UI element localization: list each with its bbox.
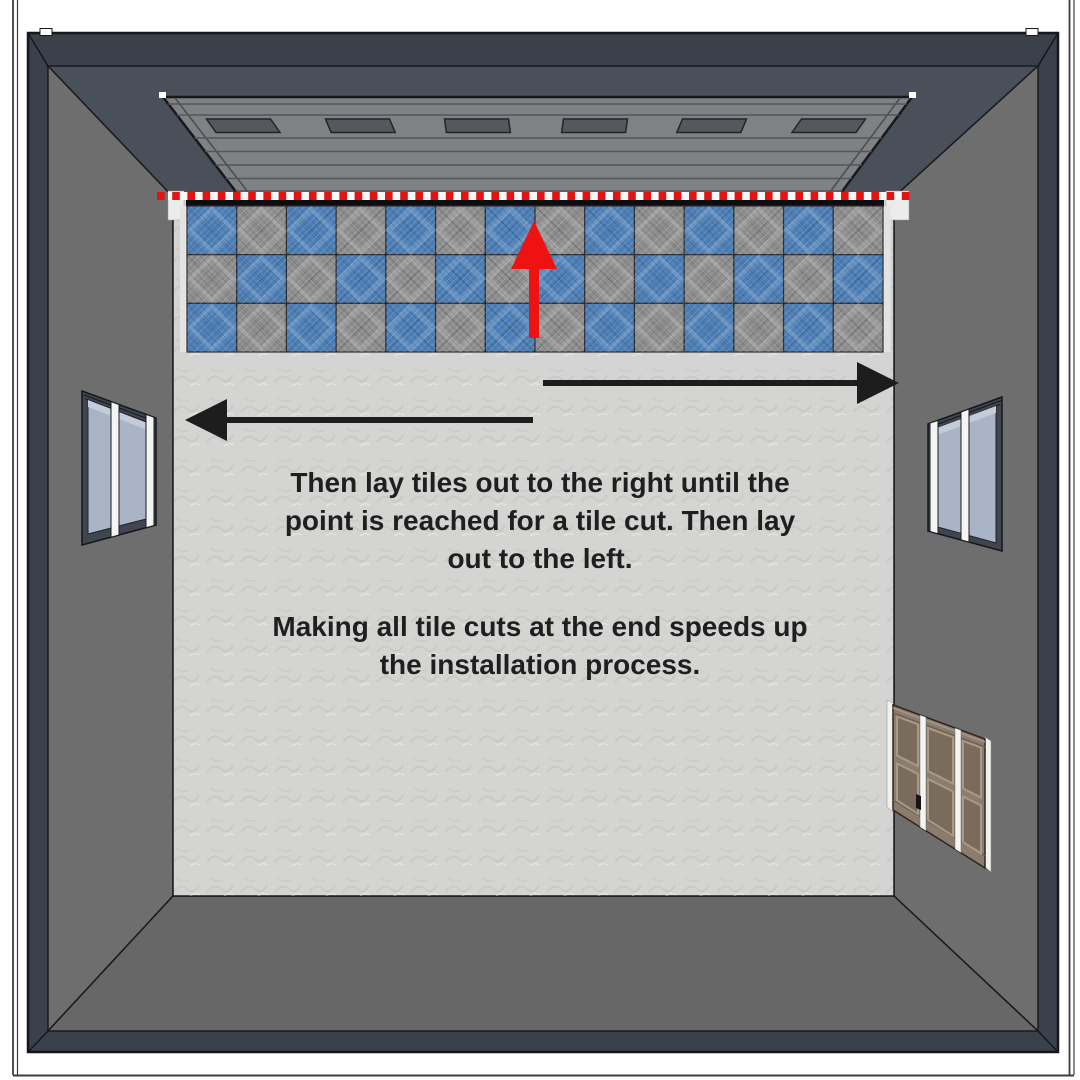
bottom-wall [48, 896, 1038, 1031]
side-door-trim [985, 737, 991, 872]
instruction-paragraph-2: Making all tile cuts at the end speeds u… [190, 608, 890, 684]
instruction-line: Making all tile cuts at the end speeds u… [190, 608, 890, 646]
side-door-handle [916, 794, 921, 810]
instruction-line: out to the left. [190, 540, 890, 578]
door-jamb-strip [884, 206, 891, 352]
corner-notch [1026, 29, 1038, 36]
instruction-text: Then lay tiles out to the right until th… [190, 464, 890, 684]
right-wall [894, 66, 1038, 1031]
instruction-line: the installation process. [190, 646, 890, 684]
corner-notch [40, 29, 52, 36]
side-door-panel [963, 741, 981, 798]
garage-door-window [792, 119, 866, 133]
left-wall-window [82, 391, 156, 545]
side-door-panel [963, 797, 981, 854]
side-door-stile [955, 728, 961, 853]
instruction-paragraph-1: Then lay tiles out to the right until th… [190, 464, 890, 578]
garage-door-window [445, 119, 511, 133]
garage-door-window [562, 119, 628, 133]
garage-door-panel [163, 97, 912, 197]
left-wall [48, 66, 173, 1031]
window-mullion [146, 414, 154, 527]
instruction-line: Then lay tiles out to the right until th… [190, 464, 890, 502]
window-mullion [111, 402, 119, 538]
garage-door [159, 92, 916, 197]
garage-door-window [677, 119, 747, 133]
door-jamb-strip [180, 206, 187, 352]
door-corner-trim [909, 92, 916, 98]
red-arrow-shaft [529, 266, 539, 338]
diagram-canvas: Then lay tiles out to the right until th… [0, 0, 1080, 1080]
door-corner-trim [159, 92, 166, 98]
side-door-trim [887, 700, 893, 812]
garage-door-window [326, 119, 396, 133]
window-mullion [961, 409, 969, 542]
garage-door-window [207, 119, 281, 133]
instruction-line: point is reached for a tile cut. Then la… [190, 502, 890, 540]
side-door-stile [920, 715, 926, 831]
right-wall-window [928, 397, 1002, 551]
window-mullion [930, 420, 938, 533]
